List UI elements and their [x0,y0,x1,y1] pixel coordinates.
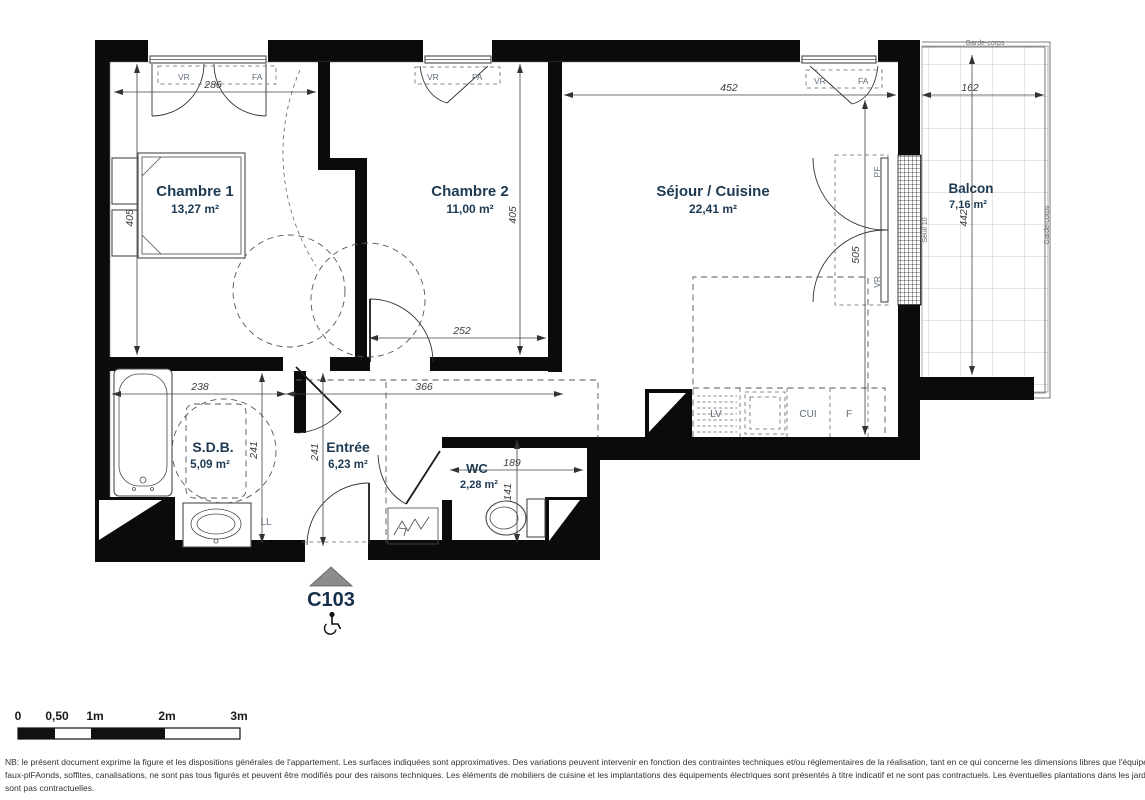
balcony: Garde-corps Garde-corps Balcon 7,16 m² [918,40,1051,400]
room-area-chambre1: 13,27 m² [171,202,219,216]
room-label-chambre1: Chambre 1 [156,183,234,200]
scale-tick-2m: 2m [158,709,175,723]
dim-ch1-width: 286 [203,79,222,91]
window-ch1-fa: FA [252,72,263,82]
fridge-label: F [846,409,852,420]
room-area-sdb: 5,09 m² [190,459,230,471]
guardrail-label-top: Garde-corps [966,40,1005,47]
entrance-marker: C103 [307,567,355,634]
door-ch2-swing [370,299,433,362]
dim-sdb-width: 238 [190,381,209,393]
room-area-wc: 2,28 m² [460,479,498,491]
dim-couloir-width: 366 [415,381,433,393]
wall-top-3 [492,40,800,62]
wall-wc-left [442,500,452,545]
wall-wc-sejour [587,437,600,560]
threshold-hatch [898,155,921,305]
wall-ch2-sejour [548,62,562,372]
scale-tick-3m: 3m [230,709,247,723]
electrical-panel [394,517,429,536]
entrance-arrow [310,567,352,586]
window-ch1-vr: VR [178,72,190,82]
kitchen: LV CUI F [693,388,885,437]
door-ch1-swing-dashed [283,70,316,266]
room-area-chambre2: 11,00 m² [446,202,493,216]
dim-wc-width: 189 [503,457,521,469]
room-label-sdb: S.D.B. [192,439,233,455]
toilet-tank [527,499,545,537]
nightstand-top [112,158,138,204]
door-entrance-swing [307,483,369,545]
toilet-bowl [486,501,526,535]
disclaimer-line3: sont pas contractuelles. [5,783,94,793]
window-ch2-fa: FA [472,72,483,82]
cooker-label: CUI [799,409,816,420]
scale-tick-050: 0,50 [45,709,69,723]
unit-number: C103 [307,589,355,611]
turning-circle-ch1 [233,235,345,347]
scale-seg-1 [18,728,55,739]
electrical-closet [388,508,438,544]
disclaimer-line2: faux-plFAonds, soffites, canalisations, … [5,770,1145,780]
door-wc-leaf [406,451,440,504]
door-balcony-leaf-lower [881,230,888,302]
dim-sejour-height: 505 [850,246,862,264]
room-label-balcon: Balcon [948,181,993,196]
entree-zone [296,380,598,437]
dim-sdb-height: 241 [248,441,260,460]
windows: VR FA VR FA VR FA [150,56,882,116]
sink-inner [750,397,780,429]
dim-ch2-height: 405 [507,206,519,224]
dim-sejour-width: 452 [720,82,738,94]
wall-ch1-ch2-upper [318,62,330,162]
window-sejour-vr: VR [814,76,826,86]
window-sejour-fa: FA [858,76,869,86]
dim-balcon-height: 442 [958,209,970,227]
wall-bottom-sejour [600,437,920,460]
wall-wc-top [442,437,600,448]
wheelchair-icon [325,612,341,634]
room-area-sejour: 22,41 m² [689,202,737,216]
wall-right-upper [898,40,920,155]
door-wc-swing [378,455,406,504]
guardrail-label-right: Garde-corps [1044,205,1051,244]
disclaimer: NB: le présent document exprime la figur… [5,757,1145,793]
window-ch2-vr: VR [427,72,439,82]
room-label-chambre2: Chambre 2 [431,183,509,200]
scale-seg-3 [91,728,165,739]
wall-mid-horiz-3 [430,357,562,371]
kitchen-counter [693,388,885,437]
sink-outer [745,392,785,434]
scale-bar: 0 0,50 1m 2m 3m [15,709,248,739]
room-label-entree: Entrée [326,439,370,455]
turning-circle-corridor [311,243,425,357]
balcony-floor [922,46,1048,392]
dim-ch1-height: 405 [124,209,136,227]
dim-balcon-width: 162 [961,82,979,94]
wall-left [95,40,110,562]
room-label-wc: WC [466,461,488,476]
dim-wc-height: 141 [502,483,514,501]
dishwasher-label: LV [710,409,722,420]
room-area-balcon: 7,16 m² [949,199,987,211]
scale-tick-1m: 1m [86,709,103,723]
wall-top-2 [268,40,423,62]
wall-mid-horiz-2 [330,357,370,371]
wall-right-lower [898,305,920,460]
balcony-bottom-wall [918,377,1034,400]
room-area-entree: 6,23 m² [328,459,368,471]
dim-ch2-width: 252 [452,325,471,337]
room-label-sejour: Séjour / Cuisine [656,183,769,200]
door-balcony-swing-lower [813,230,885,302]
door-balcony-leaf-upper [881,158,888,230]
disclaimer-line1: NB: le présent document exprime la figur… [5,757,1145,767]
wall-ch1-ch2-lower [355,158,367,357]
door-balcony-vr: VR [872,276,882,288]
balcony-doors: Seuil 10 PF VR [813,155,929,305]
floor-plan: Garde-corps Garde-corps Balcon 7,16 m² [0,0,1145,800]
threshold-label: Seuil 10 [922,217,929,242]
door-balcony-pf: PF [872,167,882,178]
dim-entree-height: 241 [309,443,321,462]
scale-tick-0: 0 [15,709,22,723]
